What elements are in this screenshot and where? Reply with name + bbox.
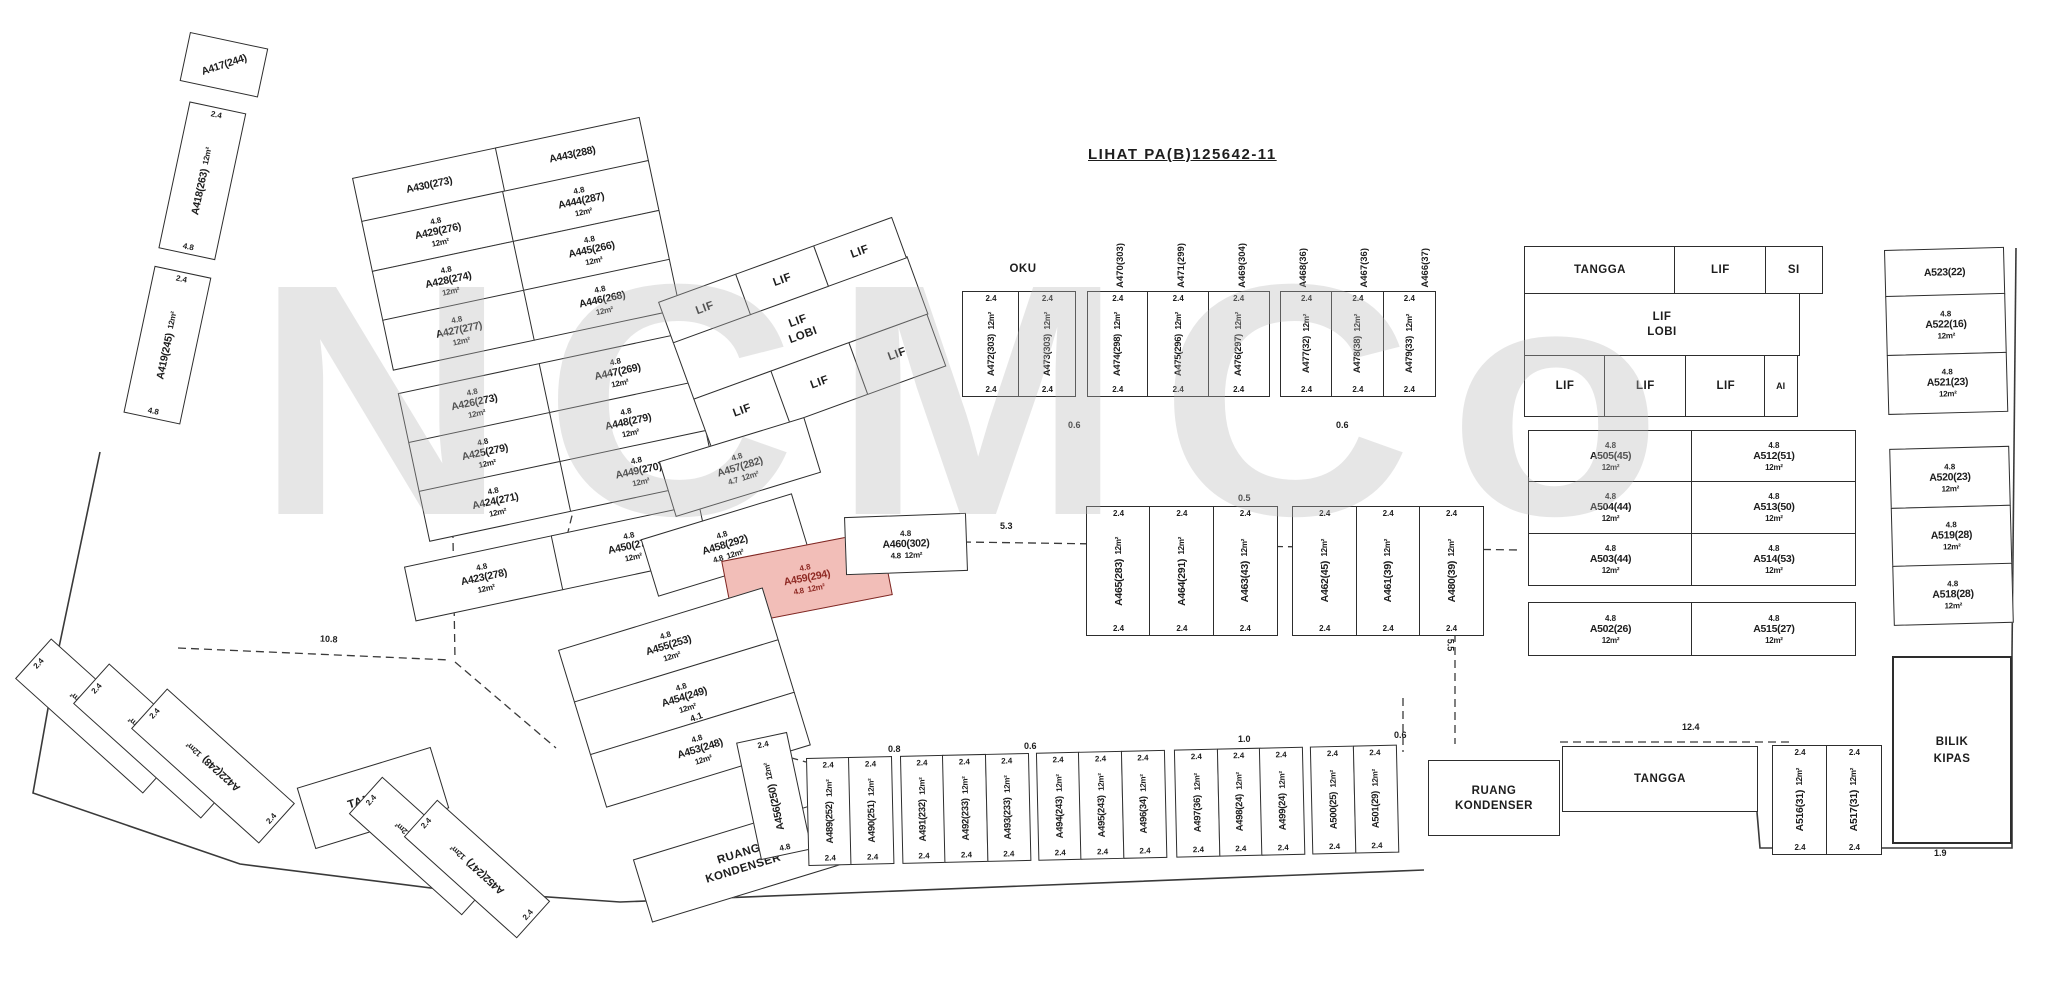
oku-top-labels: A470(303) A471(299) A469(304) A468(36) A…: [1090, 194, 1456, 288]
unit-cell: 4.8 A503(44) 12m²: [1528, 533, 1693, 586]
unit-cell: 4.8 A519(28) 12m²: [1891, 504, 2013, 567]
dimension: 4.8: [1768, 492, 1779, 501]
unit-area: 12m²: [1114, 537, 1123, 554]
unit-cell: 4.8 A514(53) 12m²: [1691, 533, 1856, 586]
dimension: 2.4: [1404, 385, 1415, 394]
unit-area: 12m²: [1235, 772, 1244, 790]
unit-area: 12m²: [1371, 769, 1380, 787]
unit-area: 12m²: [824, 779, 833, 797]
dimension: 2.4: [1849, 748, 1860, 757]
dimension: 2.4: [1404, 294, 1415, 303]
unit-label: A475(296): [1173, 334, 1184, 376]
unit-cell: 2.4 A500(25) 12m² 2.4: [1310, 746, 1356, 855]
dimension: 2.4: [1113, 624, 1124, 633]
condenser-room-label2: KONDENSER: [1455, 800, 1533, 812]
lift-label: LIF: [1556, 380, 1575, 392]
unit-area: 12m²: [1113, 312, 1122, 329]
rotated-unit-label-wrap: A471(299): [1151, 194, 1212, 288]
unit-area: 12m²: [1602, 566, 1619, 575]
unit-label: A504(44): [1590, 502, 1631, 513]
cluster-right-grid: 4.8 A505(45) 12m² 4.8 A512(51) 12m² 4.8 …: [1528, 430, 1858, 584]
oku-text: OKU: [1009, 263, 1036, 275]
unit-cell: 2.4 A496(34) 12m² 2.4: [1121, 750, 1167, 859]
dimension: 2.4: [961, 850, 972, 859]
dimension: 2.4: [1191, 752, 1202, 761]
right-lift-row: LIFLIFLIF: [1524, 355, 1765, 417]
unit-area: 12m²: [1240, 539, 1249, 556]
unit-cell: 2.4 A497(36) 12m² 2.4: [1174, 749, 1220, 858]
unit-area: 12m²: [1849, 768, 1858, 785]
unit-cell: 2.4 A465(283) 12m² 2.4: [1086, 506, 1151, 636]
condenser-room-label: RUANG: [1472, 785, 1517, 797]
unit-area: 12m²: [431, 236, 450, 248]
unit-cell: 2.4 A475(296) 12m² 2.4: [1147, 291, 1209, 397]
far-right-upper: 4.8 A522(16) 12m² 4.8 A521(23) 12m²: [1885, 293, 2008, 413]
unit-area: 12m²: [987, 312, 996, 329]
dimension: 12.4: [1682, 722, 1700, 732]
unit-cell: 2.4 A463(43) 12m² 2.4: [1213, 506, 1278, 636]
dimension: 2.4: [1173, 385, 1184, 394]
unit-area: 12m²: [1602, 636, 1619, 645]
unit-label: A491(232): [917, 799, 929, 841]
unit-label: A492(233): [960, 798, 972, 840]
dimension: 2.4: [985, 385, 996, 394]
unit-cell: 4.8 A512(51) 12m²: [1691, 430, 1856, 483]
unit-label: A489(252): [823, 801, 835, 843]
dimension: 2.4: [1319, 509, 1330, 518]
unit-label: A460(302): [882, 538, 929, 551]
unit-cell: 2.4 A464(291) 12m² 2.4: [1149, 506, 1214, 636]
unit-label: A472(303): [986, 334, 997, 376]
lift-label: LIF: [731, 402, 753, 420]
unit-area: 12m²: [1234, 312, 1243, 329]
dimension: 2.4: [1371, 841, 1382, 850]
dimension: 2.4: [1097, 847, 1108, 856]
unit-label: A502(26): [1590, 624, 1631, 635]
unit-area: 12m²: [201, 146, 213, 165]
unit-cell: 2.4 A501(29) 12m² 2.4: [1353, 745, 1399, 854]
unit-cell: 4.8 A460(302) 4.8 12m²: [844, 513, 968, 575]
dimension: 4.8: [1946, 520, 1957, 529]
unit-area: 12m²: [1192, 773, 1201, 791]
unit-area: 12m²: [631, 476, 650, 488]
dimension: 2.4: [1137, 753, 1148, 762]
dimension: 2.4: [1003, 849, 1014, 858]
unit-cell: 4.8 A502(26) 12m²: [1528, 602, 1693, 656]
unit-area: 12m²: [595, 304, 614, 316]
lift-label: LIF: [1636, 380, 1655, 392]
unit-area: 12m²: [488, 506, 507, 518]
unit-cell: 4.8 A520(23) 12m²: [1889, 446, 2011, 509]
dimension: 2.4: [823, 760, 834, 769]
bottom-row-group: 2.4 A497(36) 12m² 2.4 2.4 A498(24) 12m² …: [1174, 747, 1304, 860]
service-cell-label: SI: [1788, 264, 1800, 276]
grid-row: 4.8 A503(44) 12m² 4.8 A514(53) 12m²: [1528, 533, 1858, 586]
unit-label: A495(243): [1096, 795, 1108, 837]
unit-cell: 4.8 A521(23) 12m²: [1887, 352, 2009, 415]
dimension: 4.8: [1605, 441, 1616, 450]
unit-cell: 2.4 A517(31) 12m² 2.4: [1826, 745, 1882, 855]
unit-label: A505(45): [1590, 451, 1631, 462]
unit-label: A512(51): [1753, 451, 1794, 462]
oku-group3: 2.4 A477(32) 12m² 2.4 2.4 A478(38) 12m² …: [1280, 291, 1434, 397]
unit-label: A490(251): [866, 800, 878, 842]
unit-label: A462(45): [1319, 561, 1331, 602]
stairs-label: TANGGA: [1634, 773, 1686, 785]
unit-cell: 2.4 A516(31) 12m² 2.4: [1772, 745, 1828, 855]
lift-cell: LIF: [1685, 355, 1767, 417]
dimension: 2.4: [1278, 843, 1289, 852]
unit-area: 12m²: [585, 255, 604, 267]
unit-cell: 4.8 A515(27) 12m²: [1691, 602, 1856, 656]
unit-label: A476(297): [1233, 334, 1244, 376]
unit-area: 12m²: [184, 740, 203, 758]
grid-row: 4.8 A504(44) 12m² 4.8 A513(50) 12m²: [1528, 481, 1858, 534]
service-cell: AI: [1764, 355, 1798, 417]
dimension: 2.4: [1275, 750, 1286, 759]
dimension: 5.5: [1445, 639, 1455, 652]
unit-area: 12m²: [477, 583, 496, 595]
dimension: 2.4: [1113, 509, 1124, 518]
stairs-cell: TANGGA: [1562, 746, 1758, 812]
dimension: 2.4: [916, 758, 927, 767]
unit-cell: 4.8 A513(50) 12m²: [1691, 481, 1856, 534]
unit-cell: 2.4 A478(38) 12m² 2.4: [1331, 291, 1384, 397]
unit-label: A467(36): [1359, 248, 1370, 288]
unit-cell: 2.4 A495(243) 12m² 2.4: [1078, 751, 1124, 860]
unit-label: A461(39): [1382, 561, 1394, 602]
dimension: 2.4: [1052, 755, 1063, 764]
unit-area: 12m²: [1943, 542, 1961, 551]
dimension: 2.4: [1139, 846, 1150, 855]
dimension: 2.4: [985, 294, 996, 303]
unit-cell: 2.4 A489(252) 12m² 2.4: [806, 757, 852, 866]
dimension: 2.4: [1112, 385, 1123, 394]
unit-label: A513(50): [1753, 502, 1794, 513]
unit-label: A452(247): [464, 856, 507, 896]
unit-cell: 2.4 A473(303) 12m² 2.4: [1018, 291, 1076, 397]
unit-cell: 4.8 A505(45) 12m²: [1528, 430, 1693, 483]
lift-label: LIF: [772, 271, 794, 289]
lift-label: LIF: [694, 299, 716, 317]
unit-area: 12m²: [807, 581, 826, 593]
unit-label: A500(25): [1328, 792, 1340, 829]
dimension: 2.4: [1329, 842, 1340, 851]
unit-area: 12m²: [1447, 539, 1456, 556]
unit-label: A456(250): [766, 783, 787, 831]
dimension: 2.4: [1352, 294, 1363, 303]
unit-area: 12m²: [918, 777, 927, 795]
rotated-unit-label-wrap: A469(304): [1212, 194, 1273, 288]
unit-label: A494(243): [1053, 796, 1065, 838]
unit-area: 12m²: [166, 310, 178, 329]
unit-area: 12m²: [610, 377, 629, 389]
unit-label: A419(245): [154, 332, 175, 380]
dimension: 4.8: [1944, 462, 1955, 471]
dimension: 2.4: [1173, 294, 1184, 303]
bottom-row-group: 2.4 A500(25) 12m² 2.4 2.4 A501(29) 12m² …: [1310, 745, 1397, 857]
dimension: 0.5: [1238, 493, 1251, 503]
unit-area: 12m²: [1405, 314, 1414, 331]
unit-area: 12m²: [1765, 636, 1782, 645]
dimension: 2.4: [1042, 385, 1053, 394]
dimension: 4.8: [147, 406, 160, 417]
stairs-label: TANGGA: [1574, 264, 1626, 276]
lift-cell: LIF: [1674, 246, 1766, 294]
unit-label: A520(23): [1929, 472, 1971, 484]
unit-label: A469(304): [1237, 243, 1248, 288]
unit-label: A443(288): [548, 144, 596, 165]
unit-label: A523(22): [1924, 266, 1966, 278]
unit-label: A497(36): [1192, 795, 1204, 832]
unit-label: A480(39): [1446, 561, 1458, 602]
rotated-unit-label-wrap: A470(303): [1090, 194, 1151, 288]
fan-room-label: BILIK: [1936, 736, 1969, 748]
unit-area: 12m²: [1602, 463, 1619, 472]
dimension: 0.8: [888, 744, 901, 754]
dimension: 2.4: [1001, 756, 1012, 765]
unit-label: A499(24): [1276, 793, 1288, 830]
unit-area: 12m²: [1937, 331, 1955, 340]
unit-label: A477(32): [1301, 336, 1312, 373]
dimension: 2.4: [867, 852, 878, 861]
lift-label: LIF: [809, 374, 831, 392]
unit-area: 12m²: [1328, 770, 1337, 788]
unit-area: 12m²: [621, 426, 640, 438]
dimension: 2.4: [1849, 843, 1860, 852]
unit-area: 12m²: [960, 776, 969, 794]
service-cell: SI: [1765, 246, 1823, 294]
unit-cell: 2.4 A498(24) 12m² 2.4: [1217, 748, 1263, 857]
unit-label: A517(31): [1848, 790, 1860, 831]
unit-label: A474(298): [1112, 334, 1123, 376]
bottom-row-group: 2.4 A489(252) 12m² 2.4 2.4 A490(251) 12m…: [806, 756, 893, 868]
lift-lobby-label2: LOBI: [1647, 326, 1676, 338]
unit-area: 12m²: [1003, 775, 1012, 793]
condenser-room-cell: RUANG KONDENSER: [1428, 760, 1560, 836]
dimension: 2.4: [1352, 385, 1363, 394]
dimension: 4.8: [182, 241, 195, 252]
dimension: 0.6: [1024, 741, 1037, 751]
dimension: 1.0: [1238, 734, 1251, 744]
bottom-row-group: 2.4 A494(243) 12m² 2.4 2.4 A495(243) 12m…: [1036, 750, 1166, 863]
unit-area: 12m²: [866, 778, 875, 796]
unit-cell: 2.4 A476(297) 12m² 2.4: [1208, 291, 1270, 397]
dimension: 2.4: [1327, 749, 1338, 758]
dimension: 2.4: [1240, 509, 1251, 518]
dimension: 2.4: [1369, 748, 1380, 757]
cluster-oku-block: 2.4 A472(303) 12m² 2.4 2.4 A473(303) 12m…: [962, 291, 1456, 397]
dimension: 4.8: [1768, 441, 1779, 450]
oku-label: OKU: [988, 256, 1058, 282]
lift-label: LIF: [1711, 264, 1730, 276]
unit-cell: 2.4 A493(233) 12m² 2.4: [985, 753, 1031, 862]
dimension: 2.4: [959, 757, 970, 766]
unit-area: 12m²: [467, 408, 486, 420]
rotated-unit-label-wrap: A467(36): [1334, 194, 1395, 288]
dimension: 2.4: [1446, 509, 1457, 518]
dimension: 2.4: [1042, 294, 1053, 303]
dimension: 0.6: [1336, 420, 1349, 430]
dimension: 4.8: [1942, 368, 1953, 377]
dimension: 2.4: [1383, 624, 1394, 633]
unit-label: A493(233): [1002, 797, 1014, 839]
unit-cell: 2.4 A490(251) 12m² 2.4: [848, 756, 894, 865]
lift-label: LIF: [849, 243, 871, 261]
unit-cell: 4.8 A518(28) 12m²: [1892, 563, 2014, 626]
unit-cell: A523(22): [1884, 247, 2005, 298]
unit-area: 12m²: [1939, 389, 1957, 398]
unit-label: A422(248): [200, 753, 243, 793]
unit-label: A417(244): [200, 52, 248, 77]
dimension: 2.4: [1112, 294, 1123, 303]
mid-row-group2: 2.4 A462(45) 12m² 2.4 2.4 A461(39) 12m² …: [1292, 506, 1482, 636]
dimension: 1.9: [1934, 848, 1947, 858]
unit-cell: 2.4 A491(232) 12m² 2.4: [900, 755, 946, 864]
unit-label: A468(36): [1298, 248, 1309, 288]
dimension: 2.4: [1319, 624, 1330, 633]
rotated-unit-label-wrap: A468(36): [1273, 194, 1334, 288]
drawing-reference-title: LIHAT PA(B)125642-11: [1088, 146, 1277, 163]
dimension: 2.4: [825, 853, 836, 862]
unit-area: 12m²: [1765, 463, 1782, 472]
dimension: 4.8: [1605, 544, 1616, 553]
dimension: 10.8: [320, 634, 338, 645]
unit-label: A466(37): [1420, 248, 1431, 288]
cluster-a516-517: 2.4 A516(31) 12m² 2.4 2.4 A517(31) 12m² …: [1772, 745, 1881, 855]
dimension: 4.8: [890, 551, 901, 560]
unit-label: A464(291): [1176, 559, 1188, 606]
dimension: 2.4: [1794, 748, 1805, 757]
fan-room-label2: KIPAS: [1934, 753, 1971, 765]
unit-cell: 2.4 A480(39) 12m² 2.4: [1419, 506, 1484, 636]
dimension: 2.4: [1233, 294, 1244, 303]
unit-label: A514(53): [1753, 554, 1794, 565]
unit-area: 12m²: [1944, 601, 1962, 610]
bottom-row-group: 2.4 A491(232) 12m² 2.4 2.4 A492(233) 12m…: [900, 753, 1030, 866]
unit-area: 12m²: [1043, 312, 1052, 329]
dimension: 4.8: [793, 585, 805, 596]
unit-area: 12m²: [574, 206, 593, 218]
dimension: 4.8: [1605, 492, 1616, 501]
unit-cell: 2.4 A474(298) 12m² 2.4: [1087, 291, 1149, 397]
dimension: 2.4: [1233, 385, 1244, 394]
dimension: 2.4: [865, 759, 876, 768]
oku-group1: 2.4 A472(303) 12m² 2.4 2.4 A473(303) 12m…: [962, 291, 1075, 397]
unit-area: 12m²: [478, 457, 497, 469]
unit-cell: 2.4 A462(45) 12m² 2.4: [1292, 506, 1357, 636]
unit-area: 12m²: [1602, 514, 1619, 523]
unit-area: 12m²: [762, 761, 774, 780]
dimension: 2.4: [1176, 624, 1187, 633]
unit-area: 12m²: [905, 550, 923, 560]
dimension: 2.4: [1055, 848, 1066, 857]
dimension: 4.8: [1940, 309, 1951, 318]
fan-room-cell: BILIK KIPAS: [1892, 656, 2012, 844]
dimension: 2.4: [1176, 509, 1187, 518]
floor-plan-canvas: NCMCo LIHAT PA(B)125642-11 A417(244) 2.4…: [0, 0, 2048, 1004]
lift-cell: LIF: [1604, 355, 1686, 417]
unit-label: A430(273): [405, 175, 453, 196]
unit-cell: 2.4 A472(303) 12m² 2.4: [962, 291, 1020, 397]
dimension: 4.8: [1768, 614, 1779, 623]
unit-cell: 4.8 A504(44) 12m²: [1528, 481, 1693, 534]
oku-group2: 2.4 A474(298) 12m² 2.4 2.4 A475(296) 12m…: [1087, 291, 1268, 397]
grid-row: 4.8 A505(45) 12m² 4.8 A512(51) 12m²: [1528, 430, 1858, 483]
unit-area: 12m²: [452, 335, 471, 347]
dimension: 0.6: [1394, 730, 1407, 740]
dimension: 2.4: [1240, 624, 1251, 633]
unit-area: 12m²: [1383, 539, 1392, 556]
dimension: 4.7: [727, 475, 739, 487]
unit-area: 12m²: [1302, 314, 1311, 331]
unit-label: A522(16): [1925, 319, 1967, 331]
unit-cell: 2.4 A492(233) 12m² 2.4: [942, 754, 988, 863]
unit-cell: 2.4 A499(24) 12m² 2.4: [1259, 747, 1305, 856]
dimension: 2.4: [1383, 509, 1394, 518]
cluster-bottom-row: 2.4 A489(252) 12m² 2.4 2.4 A490(251) 12m…: [806, 744, 1432, 868]
unit-area: 12m²: [1941, 484, 1959, 493]
dimension: 2.4: [1095, 754, 1106, 763]
unit-label: A498(24): [1234, 794, 1246, 831]
unit-area: 12m²: [1096, 773, 1105, 791]
rotated-unit-label-wrap: A466(37): [1395, 194, 1456, 288]
dimension: 2.4: [1235, 844, 1246, 853]
unit-label: A463(43): [1239, 561, 1251, 602]
cluster-mid-row: 2.4 A465(283) 12m² 2.4 2.4 A464(291) 12m…: [1086, 506, 1500, 636]
unit-area: 12m²: [1353, 314, 1362, 331]
dimension: 2.4: [1193, 845, 1204, 854]
service-cell-label: AI: [1776, 381, 1785, 391]
unit-cell: 2.4 A494(243) 12m² 2.4: [1036, 752, 1082, 861]
dimension: 0.6: [1068, 420, 1081, 430]
unit-label: A516(31): [1794, 790, 1806, 831]
far-right-lower: 4.8 A520(23) 12m² 4.8 A519(28) 12m² 4.8 …: [1889, 446, 2014, 624]
unit-area: 12m²: [1054, 774, 1063, 792]
unit-label: A501(29): [1370, 791, 1382, 828]
unit-cell: 2.4 A479(33) 12m² 2.4: [1383, 291, 1436, 397]
unit-area: 12m²: [1795, 768, 1804, 785]
unit-label: A471(299): [1176, 243, 1187, 288]
lift-label: LIF: [886, 345, 908, 363]
dimension: 2.4: [1446, 624, 1457, 633]
unit-label: A518(28): [1932, 588, 1974, 600]
unit-label: A479(33): [1404, 336, 1415, 373]
dimension: 2.4: [1794, 843, 1805, 852]
unit-label: A465(283): [1113, 559, 1125, 606]
dimension: 2.4: [918, 851, 929, 860]
unit-label: A521(23): [1927, 377, 1969, 389]
lift-lobby-label: LIF: [1653, 311, 1672, 323]
unit-area: 12m²: [1765, 514, 1782, 523]
dimension: 4.8: [779, 842, 792, 853]
dimension: 4.8: [900, 528, 911, 537]
unit-label: A418(263): [189, 167, 210, 215]
dimension: 2.4: [1301, 385, 1312, 394]
unit-label: A519(28): [1931, 530, 1973, 542]
unit-cell: 2.4 A461(39) 12m² 2.4: [1356, 506, 1421, 636]
unit-area: 12m²: [1320, 539, 1329, 556]
mid-row-group1: 2.4 A465(283) 12m² 2.4 2.4 A464(291) 12m…: [1086, 506, 1276, 636]
lift-label: LIF: [1716, 380, 1735, 392]
unit-area: 12m²: [1177, 537, 1186, 554]
unit-label: A473(303): [1042, 334, 1053, 376]
dimension: 4.8: [1605, 614, 1616, 623]
unit-area: 12m²: [1174, 312, 1183, 329]
unit-area: 12m²: [1139, 775, 1148, 793]
cluster-far-right: A523(22) 4.8 A522(16) 12m² 4.8 A521(23) …: [1884, 247, 2014, 624]
cluster-right-lobby: TANGGA LIF SI LIF LOBI LIFLIFLIF AI: [1524, 246, 1864, 417]
